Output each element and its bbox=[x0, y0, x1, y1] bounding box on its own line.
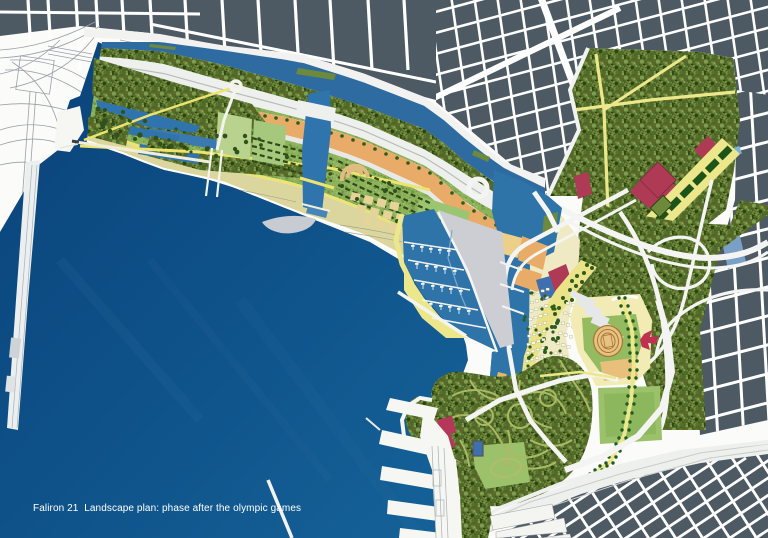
svg-text:Faliron 21 Landscape plan: ph: Faliron 21 Landscape plan: phase after t… bbox=[33, 503, 301, 514]
